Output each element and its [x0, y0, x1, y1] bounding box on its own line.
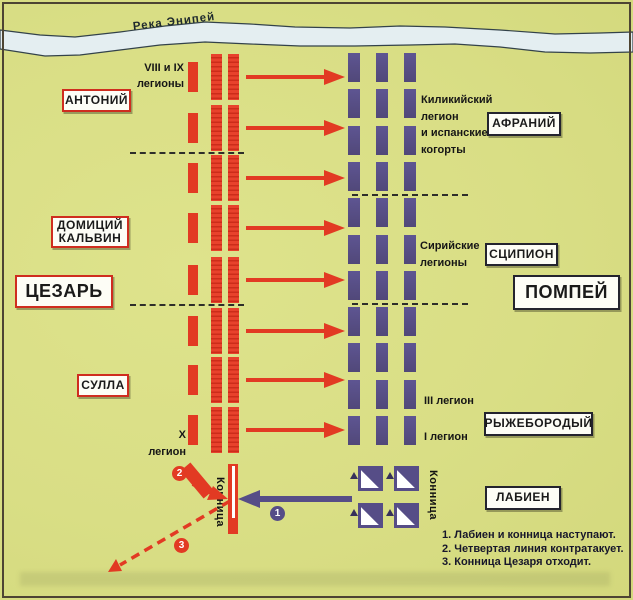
pompey-cavalry-square — [358, 503, 383, 528]
cavalry-triangle-icon — [397, 469, 416, 488]
commander-box-pompey: ПОМПЕЙ — [513, 275, 620, 310]
retreat-dashed-arrow-shaft — [120, 501, 230, 565]
attack-arrowhead — [324, 170, 345, 186]
pompey-legion-block — [348, 380, 360, 409]
pompey-legion-block — [404, 89, 416, 118]
cavalry-marker-icon — [386, 509, 394, 516]
pompey-divider-1 — [352, 194, 468, 196]
attack-arrowhead — [324, 69, 345, 85]
pompey-legion-block — [404, 126, 416, 155]
caesar-legion-block — [211, 407, 222, 453]
label-pompey-cavalry: Конница — [427, 468, 439, 522]
pompey-legion-block — [348, 307, 360, 336]
attack-arrow-shaft — [246, 126, 325, 130]
attack-arrowhead — [324, 272, 345, 288]
pompey-legion-block — [376, 162, 388, 191]
pompey-legion-block — [376, 235, 388, 264]
pompey-legion-block — [376, 343, 388, 372]
commander-box-ahenobarbus: РЫЖЕБОРОДЫЙ — [484, 412, 593, 436]
pompey-legion-block — [404, 271, 416, 300]
caesar-legion-block — [228, 105, 239, 151]
attack-arrowhead — [324, 220, 345, 236]
commander-box-caesar: ЦЕЗАРЬ — [15, 275, 113, 308]
cavalry-marker-icon — [350, 472, 358, 479]
pompey-legion-block — [348, 416, 360, 445]
cavalry-triangle-icon — [361, 469, 380, 488]
caesar-legion-block — [211, 205, 222, 251]
pompey-cavalry-square — [358, 466, 383, 491]
cavalry-marker-icon — [386, 472, 394, 479]
battle-map: Река Энипей АНТОНИЙ ДОМИЦИЙ КАЛЬВИН ЦЕЗА… — [0, 0, 633, 600]
pompey-legion-block — [348, 162, 360, 191]
attack-arrow-shaft — [246, 278, 325, 282]
legend-item-2: 2. Четвертая линия контратакует. — [442, 543, 624, 557]
legend-item-1: 1. Лабиен и конница наступают. — [442, 529, 624, 543]
label-legion-1: I легион — [424, 429, 468, 446]
pompey-legion-block — [404, 380, 416, 409]
caesar-divider-1 — [130, 152, 244, 154]
caesar-reserve-block — [188, 316, 198, 346]
pompey-legion-block — [376, 89, 388, 118]
attack-arrow-shaft — [246, 378, 325, 382]
pompey-legion-block — [404, 198, 416, 227]
cavalry-marker-icon — [350, 509, 358, 516]
cavalry-triangle-icon — [361, 506, 380, 525]
pompey-legion-block — [348, 198, 360, 227]
pompey-legion-block — [404, 416, 416, 445]
attack-arrow-shaft — [246, 428, 325, 432]
pompey-legion-block — [376, 271, 388, 300]
labienus-cavalry-attack-arrow — [258, 496, 352, 502]
marker-2-badge: 2 — [172, 466, 187, 481]
pompey-legion-block — [348, 89, 360, 118]
caesar-reserve-block — [188, 265, 198, 295]
caesar-legion-block — [228, 205, 239, 251]
river-enipeus — [0, 0, 633, 70]
pompey-legion-block — [348, 271, 360, 300]
caesar-reserve-block — [188, 113, 198, 143]
pompey-legion-block — [376, 307, 388, 336]
caesar-legion-block — [211, 155, 222, 201]
caesar-legion-block — [228, 308, 239, 354]
pompey-legion-block — [404, 343, 416, 372]
counterattack-arrow-shaft — [193, 483, 212, 492]
attack-arrow-shaft — [246, 176, 325, 180]
legend: 1. Лабиен и конница наступают. 2. Четвер… — [442, 529, 624, 570]
caesar-reserve-block — [188, 365, 198, 395]
pompey-legion-block — [376, 416, 388, 445]
pompey-divider-2 — [352, 303, 468, 305]
label-legion-3: III легион — [424, 393, 474, 410]
pompey-legion-block — [404, 235, 416, 264]
marker-1-badge: 1 — [270, 506, 285, 521]
commander-box-sulla: СУЛЛА — [77, 374, 129, 397]
retreat-arrowhead — [108, 559, 122, 572]
caesar-legion-block — [211, 105, 222, 151]
attack-arrowhead — [324, 323, 345, 339]
caesar-reserve-block — [188, 415, 198, 445]
caesar-reserve-block — [188, 163, 198, 193]
caesar-legion-block — [228, 257, 239, 303]
pompey-cavalry-square — [394, 503, 419, 528]
attack-arrow-shaft — [246, 75, 325, 79]
label-syrian-legions: Сирийские легионы — [420, 238, 479, 271]
commander-box-labienus: ЛАБИЕН — [485, 486, 561, 510]
caesar-legion-block — [211, 357, 222, 403]
pompey-legion-block — [348, 343, 360, 372]
attack-arrowhead — [324, 422, 345, 438]
pompey-legion-block — [376, 380, 388, 409]
caesar-reserve-block — [188, 213, 198, 243]
pompey-legion-block — [348, 126, 360, 155]
attack-arrowhead — [324, 120, 345, 136]
marker-3-badge: 3 — [174, 538, 189, 553]
commander-box-afranius: АФРАНИЙ — [487, 112, 561, 136]
label-cilician-legion: Киликийский легион и испанские когорты — [421, 92, 492, 158]
pompey-cavalry-square — [394, 466, 419, 491]
attack-arrow-shaft — [246, 329, 325, 333]
legend-item-3: 3. Конница Цезаря отходит. — [442, 556, 624, 570]
pompey-legion-block — [404, 307, 416, 336]
caesar-legion-block — [228, 407, 239, 453]
attack-arrow-shaft — [246, 226, 325, 230]
attack-arrowhead — [324, 372, 345, 388]
pompey-legion-block — [376, 126, 388, 155]
caesar-legion-block — [211, 257, 222, 303]
caesar-legion-block — [211, 308, 222, 354]
pompey-legion-block — [404, 162, 416, 191]
cavalry-triangle-icon — [397, 506, 416, 525]
caesar-legion-block — [228, 357, 239, 403]
pompey-legion-block — [348, 235, 360, 264]
commander-box-domitius-calvinus: ДОМИЦИЙ КАЛЬВИН — [51, 216, 129, 248]
pompey-legion-block — [376, 198, 388, 227]
caesar-legion-block — [228, 155, 239, 201]
commander-box-scipio: СЦИПИОН — [485, 243, 558, 266]
caesar-divider-2 — [130, 304, 244, 306]
